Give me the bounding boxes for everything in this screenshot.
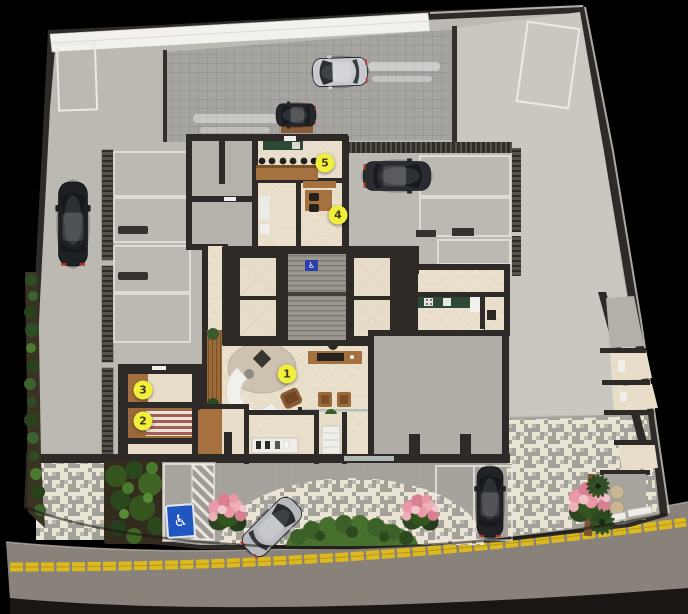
striped-rug <box>146 410 192 436</box>
marker-2[interactable]: 2 <box>134 412 153 431</box>
marker-3[interactable]: 3 <box>134 381 153 400</box>
car-on-lift <box>275 101 317 128</box>
marker-4-label: 4 <box>334 209 342 222</box>
door <box>284 136 296 141</box>
wheel-stop <box>118 226 148 234</box>
office-chair <box>309 193 319 201</box>
bar-stool <box>280 158 287 165</box>
bar-stool <box>269 158 276 165</box>
service-rooms <box>186 134 349 252</box>
bar-stool <box>259 158 266 165</box>
storage-room <box>368 330 509 462</box>
car-entering-ramp <box>310 54 369 90</box>
marker-1[interactable]: 1 <box>278 365 297 384</box>
marker-5[interactable]: 5 <box>316 154 335 173</box>
marker-5-label: 5 <box>321 157 329 170</box>
front-wall <box>26 454 510 463</box>
floor-plan-svg <box>0 0 688 614</box>
wheel-stop <box>118 272 148 280</box>
car-parked-right <box>361 158 432 193</box>
floor-plan-render: 1 2 3 4 5 ♿ ♿ <box>0 0 688 614</box>
car-parked-street-side <box>474 464 506 539</box>
slipper-shelf <box>252 438 298 453</box>
bar-stool <box>301 158 308 165</box>
planter <box>207 328 219 340</box>
marker-3-label: 3 <box>139 384 147 397</box>
accessibility-sign-icon: ♿ <box>305 260 318 271</box>
office-chair <box>309 204 319 212</box>
motion-streak <box>193 114 281 123</box>
door <box>152 366 166 370</box>
car-parked-left <box>55 179 90 268</box>
marker-4[interactable]: 4 <box>329 206 348 225</box>
pouf <box>610 485 624 499</box>
bar-stool <box>290 158 297 165</box>
accessible-parking-icon: ♿ <box>165 503 196 539</box>
marker-1-label: 1 <box>283 368 291 381</box>
entrance-glass-door <box>344 456 394 461</box>
motion-streak <box>368 62 440 71</box>
door <box>224 197 236 201</box>
marker-2-label: 2 <box>139 415 147 428</box>
sink <box>443 298 451 306</box>
